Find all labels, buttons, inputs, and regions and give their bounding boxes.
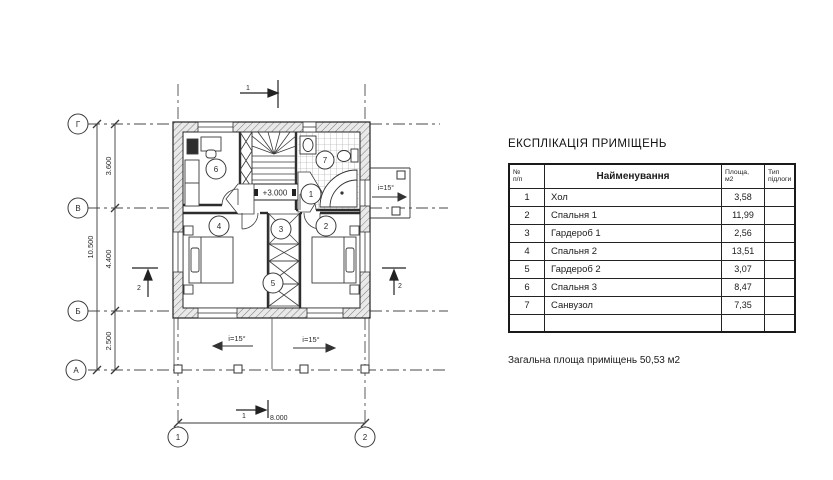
- room-num-3: 3: [279, 225, 284, 234]
- row-area: 2,56: [722, 224, 765, 242]
- slope-label-right: i=15°: [302, 335, 319, 344]
- dim-seg-2500: 2.500: [104, 332, 113, 351]
- room-num-1: 1: [309, 190, 314, 199]
- header-area-line2: м2: [725, 176, 761, 184]
- chair: [206, 150, 216, 158]
- row-floor: [765, 314, 796, 332]
- header-name: Найменування: [545, 164, 722, 188]
- header-num-line2: п/п: [513, 176, 541, 184]
- row-area: 3,58: [722, 188, 765, 206]
- room-schedule: ЕКСПЛІКАЦІЯ ПРИМІЩЕНЬ № п/п Найменування…: [508, 138, 776, 366]
- nightstand: [350, 285, 359, 294]
- row-floor: [765, 242, 796, 260]
- table-header-row: № п/п Найменування Площа, м2 Тип підлоги: [509, 164, 795, 188]
- row-floor: [765, 224, 796, 242]
- header-area-line1: Площа,: [725, 169, 761, 177]
- room-num-6: 6: [214, 165, 219, 174]
- dim-seg-3600: 3.600: [104, 157, 113, 176]
- nightstand: [350, 226, 359, 235]
- row-area: [722, 314, 765, 332]
- row-floor: [765, 278, 796, 296]
- room-num-7: 7: [323, 156, 328, 165]
- axis-label-b: Б: [75, 307, 80, 316]
- room-num-5: 5: [271, 279, 276, 288]
- toilet-tank: [351, 149, 358, 162]
- row-area: 3,07: [722, 260, 765, 278]
- row-num: [509, 314, 545, 332]
- row-num: 2: [509, 206, 545, 224]
- row-floor: [765, 188, 796, 206]
- section-1-bottom: 1: [242, 413, 246, 420]
- toilet-bowl: [338, 151, 351, 162]
- row-num: 7: [509, 296, 545, 314]
- row-name: Гардероб 2: [545, 260, 722, 278]
- door-arrow-left: [226, 184, 254, 214]
- row-name: Хол: [545, 188, 722, 206]
- row-area: 7,35: [722, 296, 765, 314]
- screenshot-root: 10.500 3.600 4.400 2.500 8.000 Г В Б А 1…: [0, 0, 833, 480]
- table-row: 4 Спальня 2 13,51: [509, 242, 795, 260]
- axis-label-g: Г: [76, 120, 81, 129]
- section-2-right: 2: [398, 283, 402, 290]
- table-row: 1 Хол 3,58: [509, 188, 795, 206]
- row-floor: [765, 260, 796, 278]
- staircase: [240, 132, 296, 188]
- dim-width-8000: 8.000: [270, 415, 288, 422]
- row-num: 6: [509, 278, 545, 296]
- row-floor: [765, 206, 796, 224]
- nightstand: [184, 226, 193, 235]
- table-row-empty: [509, 314, 795, 332]
- room-num-4: 4: [217, 222, 222, 231]
- row-name: Спальня 2: [545, 242, 722, 260]
- room-num-2: 2: [324, 222, 329, 231]
- table-row: 5 Гардероб 2 3,07: [509, 260, 795, 278]
- header-floor-line2: підлоги: [768, 176, 791, 184]
- slope-label-canopy: i=15°: [378, 184, 394, 192]
- row-name: Спальня 3: [545, 278, 722, 296]
- axis-label-2: 2: [363, 433, 368, 442]
- dim-total-height: 10.500: [86, 236, 95, 259]
- canopy: i=15°: [370, 168, 410, 218]
- level-mark-text: +3.000: [263, 189, 288, 198]
- row-name: Спальня 1: [545, 206, 722, 224]
- row-num: 3: [509, 224, 545, 242]
- nightstand: [184, 285, 193, 294]
- table-row: 7 Санвузол 7,35: [509, 296, 795, 314]
- table-row: 3 Гардероб 1 2,56: [509, 224, 795, 242]
- header-num-line1: №: [513, 169, 541, 177]
- floor-plan: 10.500 3.600 4.400 2.500 8.000 Г В Б А 1…: [0, 0, 510, 480]
- terrace: i=15° i=15°: [174, 318, 369, 373]
- row-floor: [765, 296, 796, 314]
- row-name: [545, 314, 722, 332]
- level-mark: +3.000: [252, 184, 298, 200]
- section-2-left: 2: [137, 285, 141, 292]
- axis-label-1: 1: [176, 433, 181, 442]
- row-area: 11,99: [722, 206, 765, 224]
- table-row: 2 Спальня 1 11,99: [509, 206, 795, 224]
- desk: [201, 137, 221, 151]
- row-num: 4: [509, 242, 545, 260]
- dim-seg-4400: 4.400: [104, 250, 113, 269]
- row-area: 8,47: [722, 278, 765, 296]
- section-1-top: 1: [246, 85, 250, 92]
- slope-label-left: i=15°: [228, 334, 245, 343]
- total-area-text: Загальна площа приміщень 50,53 м2: [508, 355, 776, 366]
- row-name: Гардероб 1: [545, 224, 722, 242]
- row-num: 1: [509, 188, 545, 206]
- room-schedule-table: № п/п Найменування Площа, м2 Тип підлоги…: [508, 163, 796, 333]
- row-area: 13,51: [722, 242, 765, 260]
- axis-label-a: А: [73, 366, 79, 375]
- row-name: Санвузол: [545, 296, 722, 314]
- tv-unit: [187, 139, 198, 154]
- table-row: 6 Спальня 3 8,47: [509, 278, 795, 296]
- schedule-title: ЕКСПЛІКАЦІЯ ПРИМІЩЕНЬ: [508, 138, 776, 150]
- axis-label-v: В: [75, 204, 80, 213]
- row-num: 5: [509, 260, 545, 278]
